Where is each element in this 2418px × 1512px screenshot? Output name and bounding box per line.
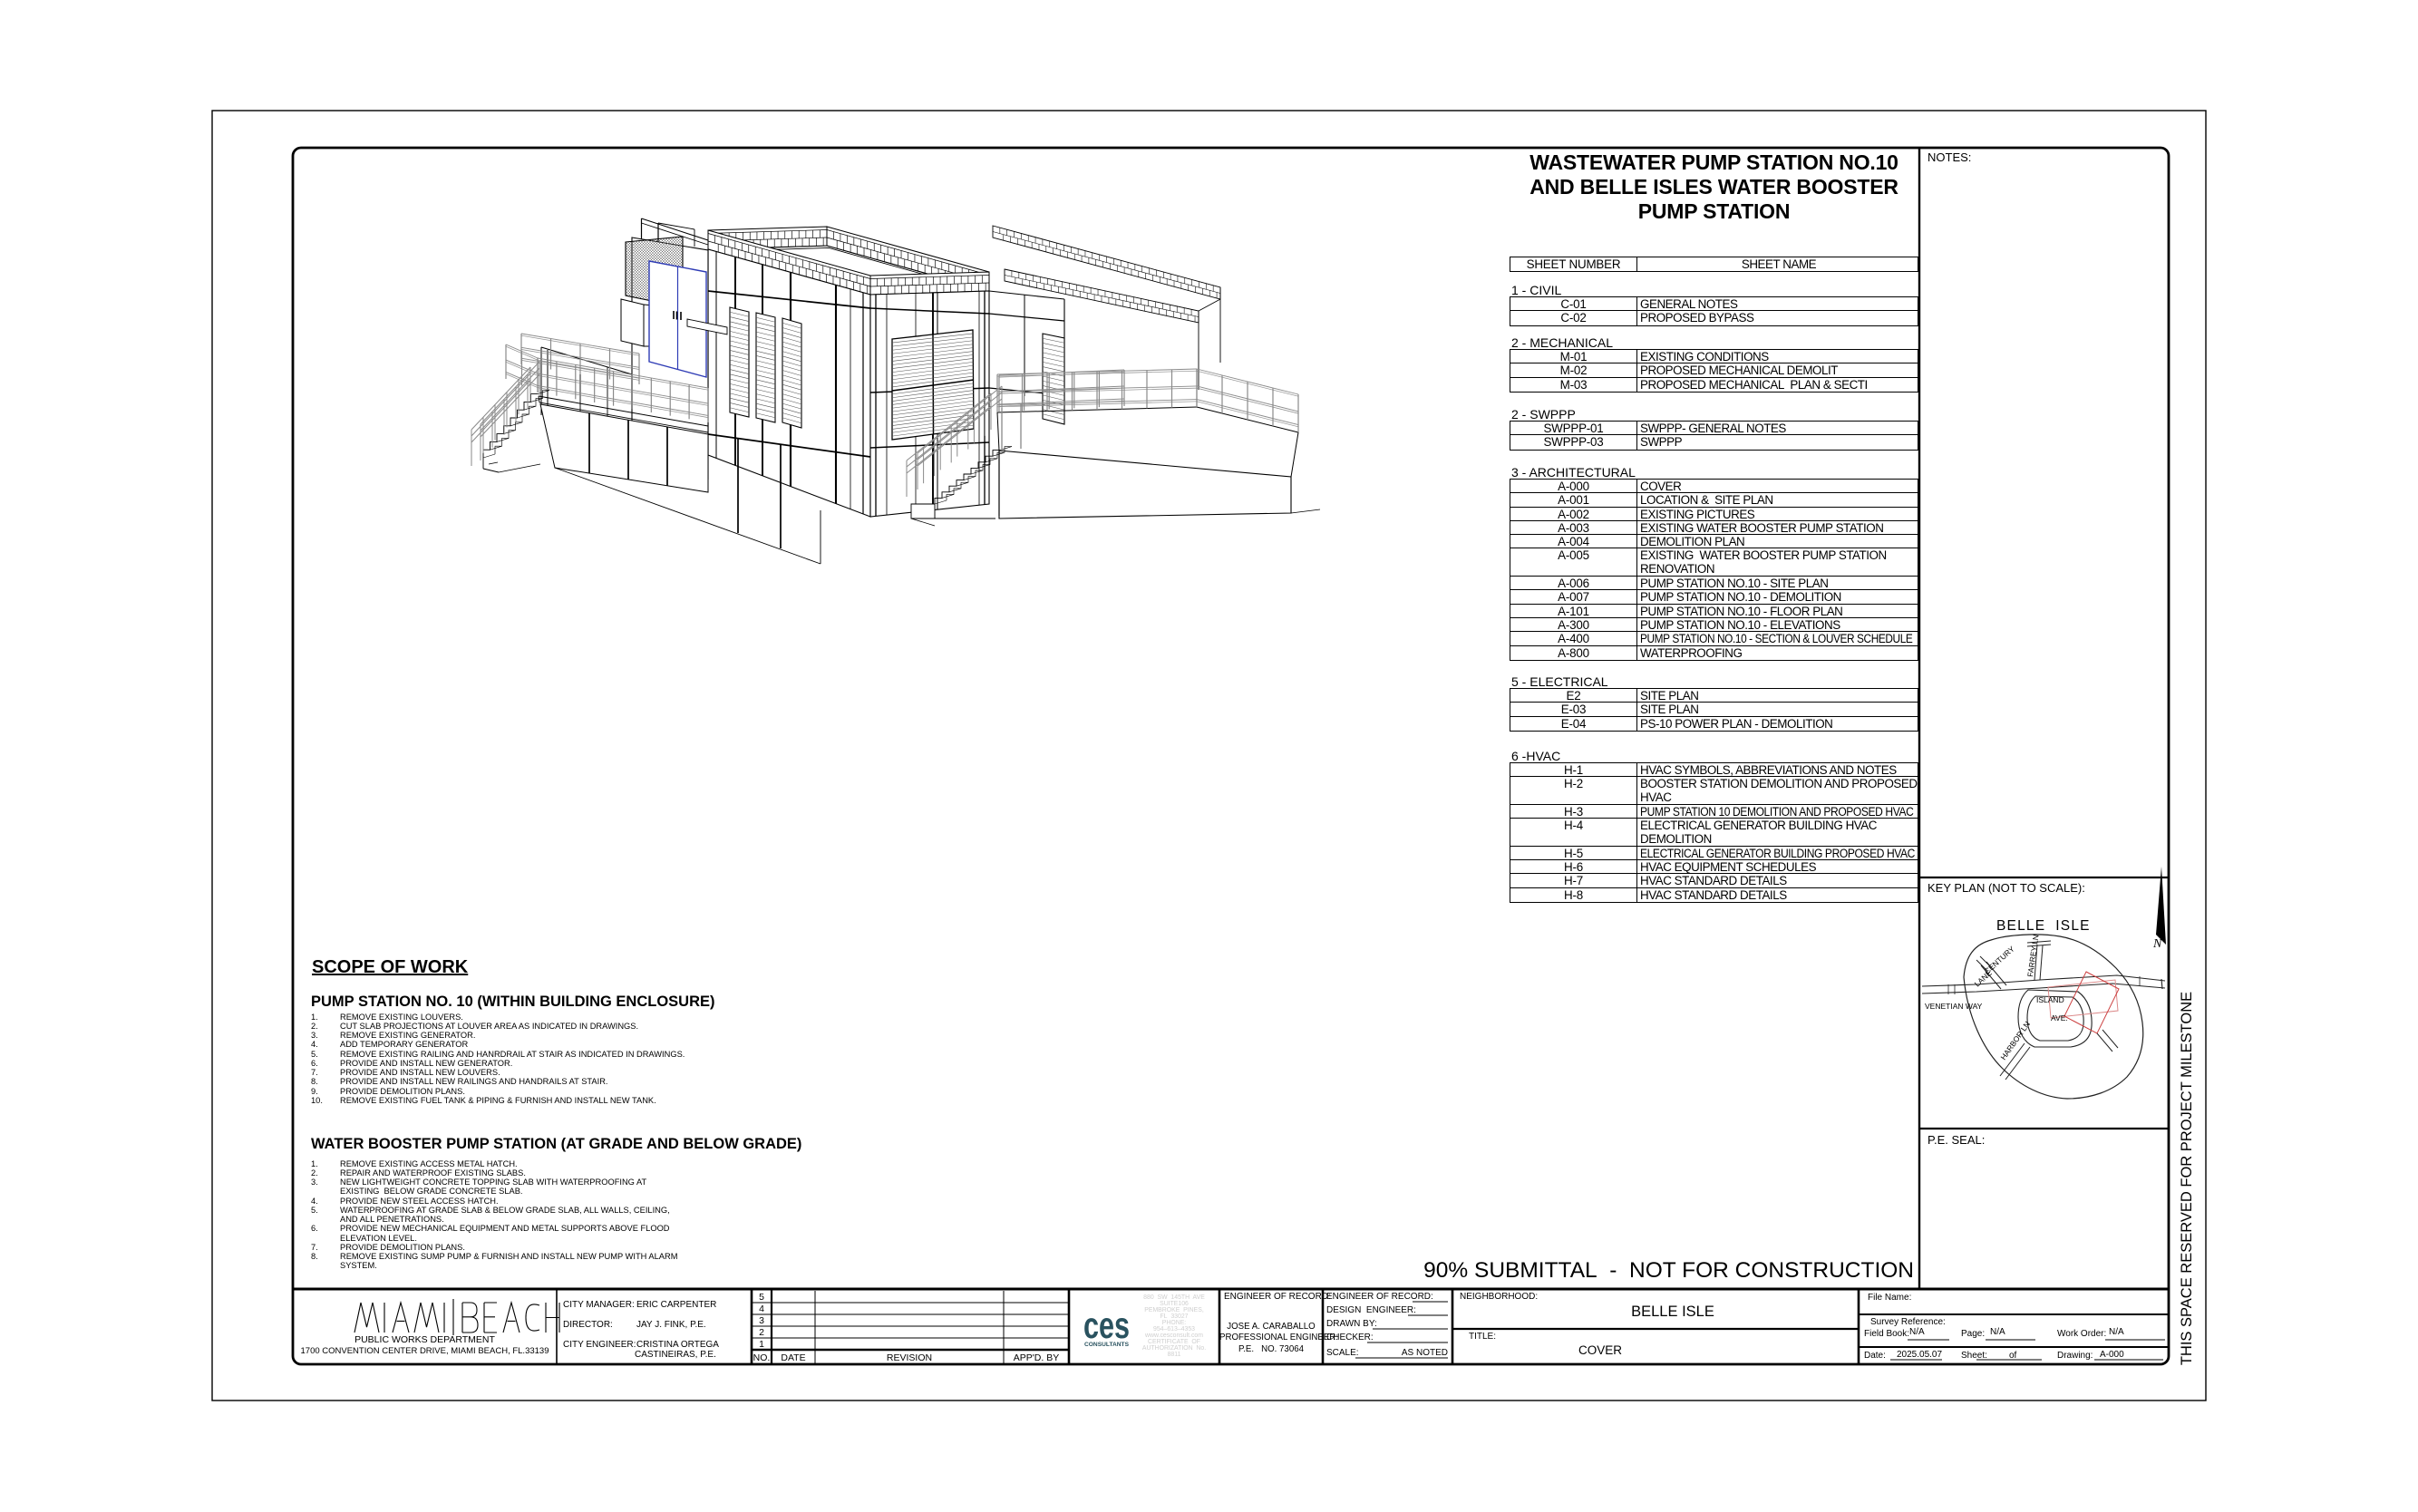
svg-text:ces: ces <box>1083 1304 1130 1346</box>
svg-text:N: N <box>2152 937 2162 951</box>
svg-text:CONSULTANTS: CONSULTANTS <box>1084 1342 1129 1348</box>
svg-text:FARREY LN: FARREY LN <box>2025 934 2040 977</box>
svg-text:AVE.: AVE. <box>2051 1013 2068 1023</box>
svg-text:BELLE ISLE: BELLE ISLE <box>1996 918 2091 934</box>
svg-text:THIS SPACE RESERVED FOR PROJEC: THIS SPACE RESERVED FOR PROJECT MILESTON… <box>2179 992 2195 1365</box>
svg-text:VENETIAN WAY: VENETIAN WAY <box>1925 1002 1983 1011</box>
svg-text:ISLAND: ISLAND <box>2036 995 2064 1004</box>
